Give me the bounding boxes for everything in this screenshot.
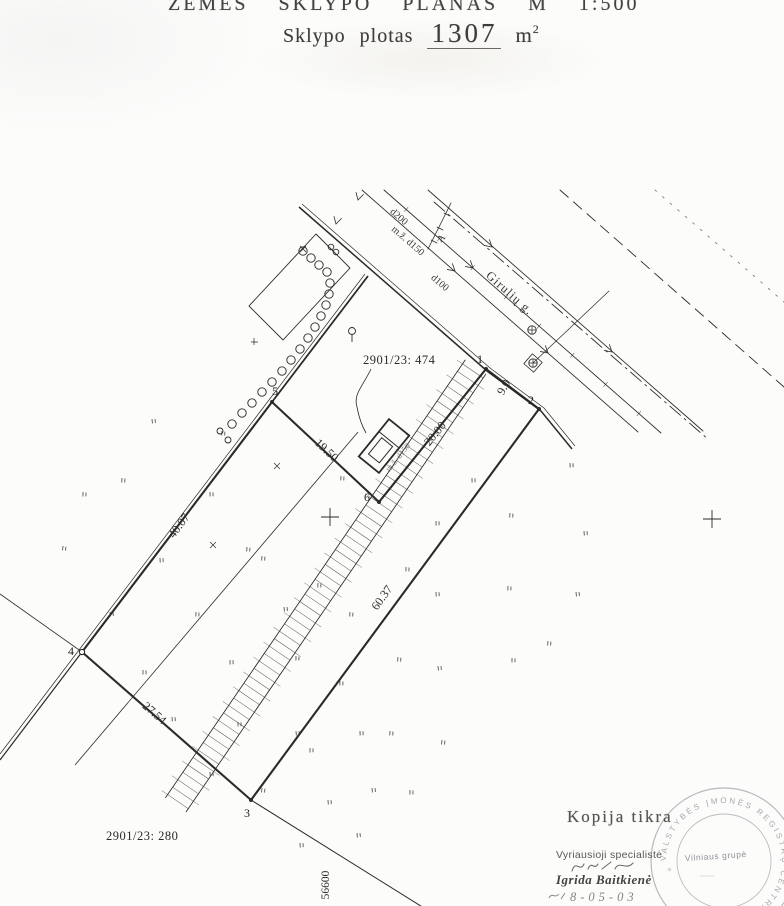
certifier-name: Igrida Baitkienė xyxy=(556,872,652,888)
point-label-4: 4 xyxy=(68,644,74,658)
flow-arrowheads xyxy=(332,192,614,356)
grid-cross-icon xyxy=(321,508,721,528)
tree-row-symbols xyxy=(217,244,356,443)
stamp-center-text: Vilniaus grupė xyxy=(684,849,747,863)
scanned-land-plan-page: ŽEMĖS SKLYPO PLANAS M 1:500 Sklypo plota… xyxy=(0,0,784,906)
coordinate-label: 56600 xyxy=(320,870,332,899)
point-label-6: 6 xyxy=(364,490,370,504)
dimension-5-6: 19.50 xyxy=(312,436,341,465)
boundary-vertex-marks xyxy=(79,367,541,802)
plot-boundary xyxy=(0,274,539,906)
parcel-number-label: 2901/23: 474 xyxy=(363,353,436,367)
point-label-3: 3 xyxy=(244,806,250,820)
grass-symbols xyxy=(63,419,588,848)
street-name-label: Girulių g. xyxy=(483,268,536,318)
point-label-1: 1 xyxy=(477,352,483,366)
cadastral-plan-drawing: 1 2 3 4 5 6 40.07 27.54 60.37 19.50 20.0… xyxy=(0,0,784,906)
label-leader-line xyxy=(356,369,371,433)
point-label-5: 5 xyxy=(272,384,278,398)
point-label-2: 2 xyxy=(528,393,534,407)
dimension-1-2: 9.0 xyxy=(494,377,513,397)
utility-label-d100: d100 xyxy=(428,272,450,293)
manhole-symbols xyxy=(524,326,542,372)
dimension-4-5: 40.07 xyxy=(165,511,192,541)
certification-date: 8-05-03 xyxy=(546,887,726,906)
neighbor-parcel-label: 2901/23: 280 xyxy=(106,829,178,843)
dimension-6-1: 20.00 xyxy=(421,419,449,449)
dimension-3-4: 27.54 xyxy=(140,699,170,727)
copy-certification-heading: Kopija tikra xyxy=(567,807,673,827)
street-utility-lines xyxy=(362,190,784,440)
date-text: 8-05-03 xyxy=(570,890,638,904)
